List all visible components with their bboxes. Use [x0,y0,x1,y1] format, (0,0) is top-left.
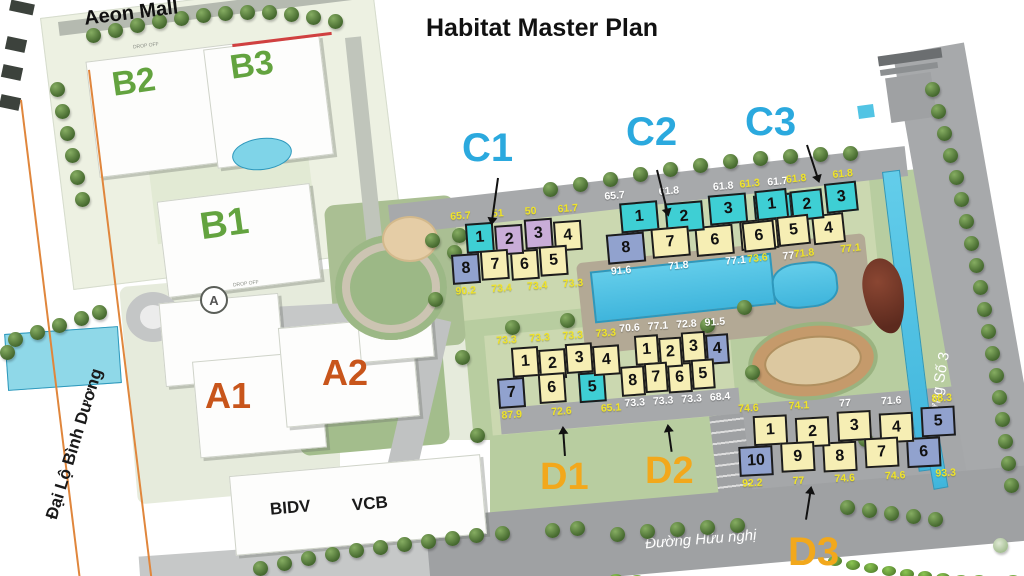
building-unit-7: 7 [864,436,900,468]
area-measurement: 73.6 [747,252,768,265]
area-measurement: 91.6 [610,264,631,276]
gate-water-feature [857,104,875,119]
area-measurement: 88.3 [931,393,952,405]
building-unit-6: 6 [537,372,566,404]
tree-icon [425,233,440,248]
tree-icon [995,412,1010,427]
tree-icon [783,149,798,164]
tree-icon [610,527,625,542]
tree-icon [543,182,558,197]
offsite-building [9,0,35,15]
building-unit-5: 5 [690,358,716,390]
bush-icon [864,563,878,573]
tree-icon [931,104,946,119]
building-unit-6: 6 [741,219,776,252]
area-measurement: 87.9 [501,409,522,421]
area-measurement: 73.3 [681,393,702,405]
area-measurement: 50 [524,206,536,217]
block-C3: 61.361.861.812365473.671.877.1 [737,168,863,265]
offsite-building [0,94,21,111]
tree-icon [993,538,1008,553]
tree-icon [977,302,992,317]
tree-icon [284,7,299,22]
tree-icon [74,311,89,326]
area-measurement: 61.8 [713,181,734,193]
tree-icon [928,512,943,527]
block-D2: 70.677.172.891.51234876573.373.373.368.4 [617,316,733,408]
building-unit-3: 3 [824,180,859,213]
area-measurement: 91.5 [704,316,725,328]
tree-icon [670,522,685,537]
bush-icon [900,569,914,576]
area-measurement: 71.6 [881,395,902,407]
building-unit-9: 9 [780,440,816,472]
tree-icon [737,300,752,315]
tree-icon [973,280,988,295]
tree-icon [325,547,340,562]
tree-icon [693,158,708,173]
label-B3: B3 [228,45,276,85]
building-unit-8: 8 [451,252,481,284]
tree-icon [65,148,80,163]
tree-icon [730,518,745,533]
tree-icon [992,390,1007,405]
label-B1: B1 [198,202,251,246]
vcb-label: VCB [351,492,389,515]
tree-icon [55,104,70,119]
area-measurement: 72.6 [551,405,572,417]
area-measurement: 61.8 [832,168,853,181]
tree-icon [545,523,560,538]
tree-icon [262,5,277,20]
area-measurement: 73.3 [562,330,583,342]
label-A2: A2 [322,355,368,391]
tree-icon [75,192,90,207]
label-A1: A1 [205,378,251,414]
label-C3: C3 [745,102,796,142]
area-measurement: 77 [839,398,851,409]
building-unit-3: 3 [837,409,873,441]
building-unit-7: 7 [497,377,526,409]
tree-icon [954,192,969,207]
tree-icon [469,528,484,543]
label-D2: D2 [645,452,694,490]
tree-icon [240,5,255,20]
tree-icon [60,126,75,141]
area-measurement: 90.2 [455,285,476,297]
tree-icon [397,537,412,552]
building-unit-5: 5 [539,244,569,276]
tree-icon [700,520,715,535]
tree-icon [964,236,979,251]
block-D1: 73.373.373.373.3123476587.972.665.1 [494,327,624,420]
block-C1: 65.7515061.71234876590.273.473.473.3 [448,203,586,297]
area-measurement: 61.7 [557,203,578,215]
tree-icon [470,428,485,443]
area-measurement: 70.6 [619,322,640,334]
tree-icon [943,148,958,163]
area-measurement: 77.1 [725,254,746,266]
building-unit-10: 10 [738,445,774,477]
area-measurement: 73.3 [562,277,583,289]
tree-icon [253,561,268,576]
tree-icon [985,346,1000,361]
gate-a-marker: A [200,286,228,314]
tree-icon [998,434,1013,449]
building-unit-5: 5 [578,371,607,403]
tree-icon [663,162,678,177]
label-B2: B2 [110,62,158,102]
tree-icon [445,531,460,546]
tree-icon [50,82,65,97]
area-measurement: 65.7 [450,210,471,222]
tree-icon [981,324,996,339]
area-measurement: 68.4 [710,391,731,403]
building-unit-1: 1 [634,334,660,366]
tree-icon [573,177,588,192]
bush-icon [846,560,860,570]
tree-icon [328,14,343,29]
building-unit-7: 7 [480,248,510,280]
area-measurement: 74.6 [738,403,759,415]
area-measurement: 77 [792,475,804,486]
tree-icon [428,292,443,307]
area-measurement: 77.1 [840,242,861,255]
tree-icon [906,509,921,524]
building-unit-5: 5 [776,213,811,246]
building-unit-3: 3 [681,330,707,362]
building-unit-3: 3 [523,217,553,249]
tree-icon [745,365,760,380]
building-unit-7: 7 [650,225,690,258]
building-unit-8: 8 [620,365,646,397]
tree-icon [884,506,899,521]
building-unit-4: 4 [592,344,621,376]
tree-icon [1001,456,1016,471]
area-measurement: 73.3 [595,327,616,339]
tree-icon [421,534,436,549]
building-unit-5: 5 [920,405,956,437]
area-measurement: 74.1 [789,400,810,412]
area-measurement: 61.8 [786,173,807,186]
tree-icon [306,10,321,25]
tree-icon [753,151,768,166]
tree-icon [925,82,940,97]
tree-icon [0,345,15,360]
building-unit-1: 1 [511,345,540,377]
area-measurement: 74.6 [834,472,855,484]
label-C2: C2 [626,112,677,152]
area-measurement: 73.3 [653,395,674,407]
area-measurement: 74.6 [885,470,906,482]
area-measurement: 65.7 [604,190,625,202]
tree-icon [277,556,292,571]
area-measurement: 71.8 [793,247,814,260]
tree-icon [52,318,67,333]
tree-icon [349,543,364,558]
tree-icon [196,8,211,23]
area-measurement: 93.3 [935,467,956,479]
label-D1: D1 [540,458,589,496]
area-measurement: 73.3 [624,397,645,409]
tree-icon [862,503,877,518]
tree-icon [560,313,575,328]
tree-icon [949,170,964,185]
page-title: Habitat Master Plan [426,14,658,43]
tree-icon [455,350,470,365]
tree-icon [495,526,510,541]
gate-drive [885,72,937,123]
tree-icon [989,368,1004,383]
tree-icon [840,500,855,515]
tree-icon [640,524,655,539]
area-measurement: 73.4 [491,282,512,294]
area-measurement: 71.8 [668,259,689,271]
label-C1: C1 [462,128,513,168]
tree-icon [969,258,984,273]
tree-icon [30,325,45,340]
area-measurement: 73.3 [496,334,517,346]
block-D3: 74.674.17771.688.31234510987692.27774.67… [736,393,958,489]
area-measurement: 92.2 [742,477,763,489]
bush-icon [918,571,932,576]
tree-icon [723,154,738,169]
area-measurement: 72.8 [676,318,697,330]
master-plan-map: 65.7515061.71234876590.273.473.473.3 65.… [0,0,1024,576]
tree-icon [70,170,85,185]
offsite-building [5,36,27,53]
building-unit-7: 7 [643,361,669,393]
tree-icon [959,214,974,229]
tree-icon [813,147,828,162]
building-unit-3: 3 [565,342,594,374]
tree-icon [1004,478,1019,493]
tree-icon [937,126,952,141]
label-D3: D3 [788,532,839,572]
bidv-label: BIDV [269,496,311,519]
area-measurement: 73.3 [529,332,550,344]
tree-icon [570,521,585,536]
offsite-building [1,64,23,81]
area-measurement: 77.1 [647,320,668,332]
tree-icon [301,551,316,566]
area-measurement: 61.3 [739,178,760,191]
building-unit-8: 8 [606,231,646,264]
building-unit-1: 1 [753,414,789,446]
tree-icon [633,167,648,182]
tree-icon [218,6,233,21]
bush-icon [882,566,896,576]
tree-icon [843,146,858,161]
tree-icon [373,540,388,555]
area-measurement: 73.4 [527,280,548,292]
tree-icon [603,172,618,187]
area-measurement: 65.1 [601,402,622,414]
